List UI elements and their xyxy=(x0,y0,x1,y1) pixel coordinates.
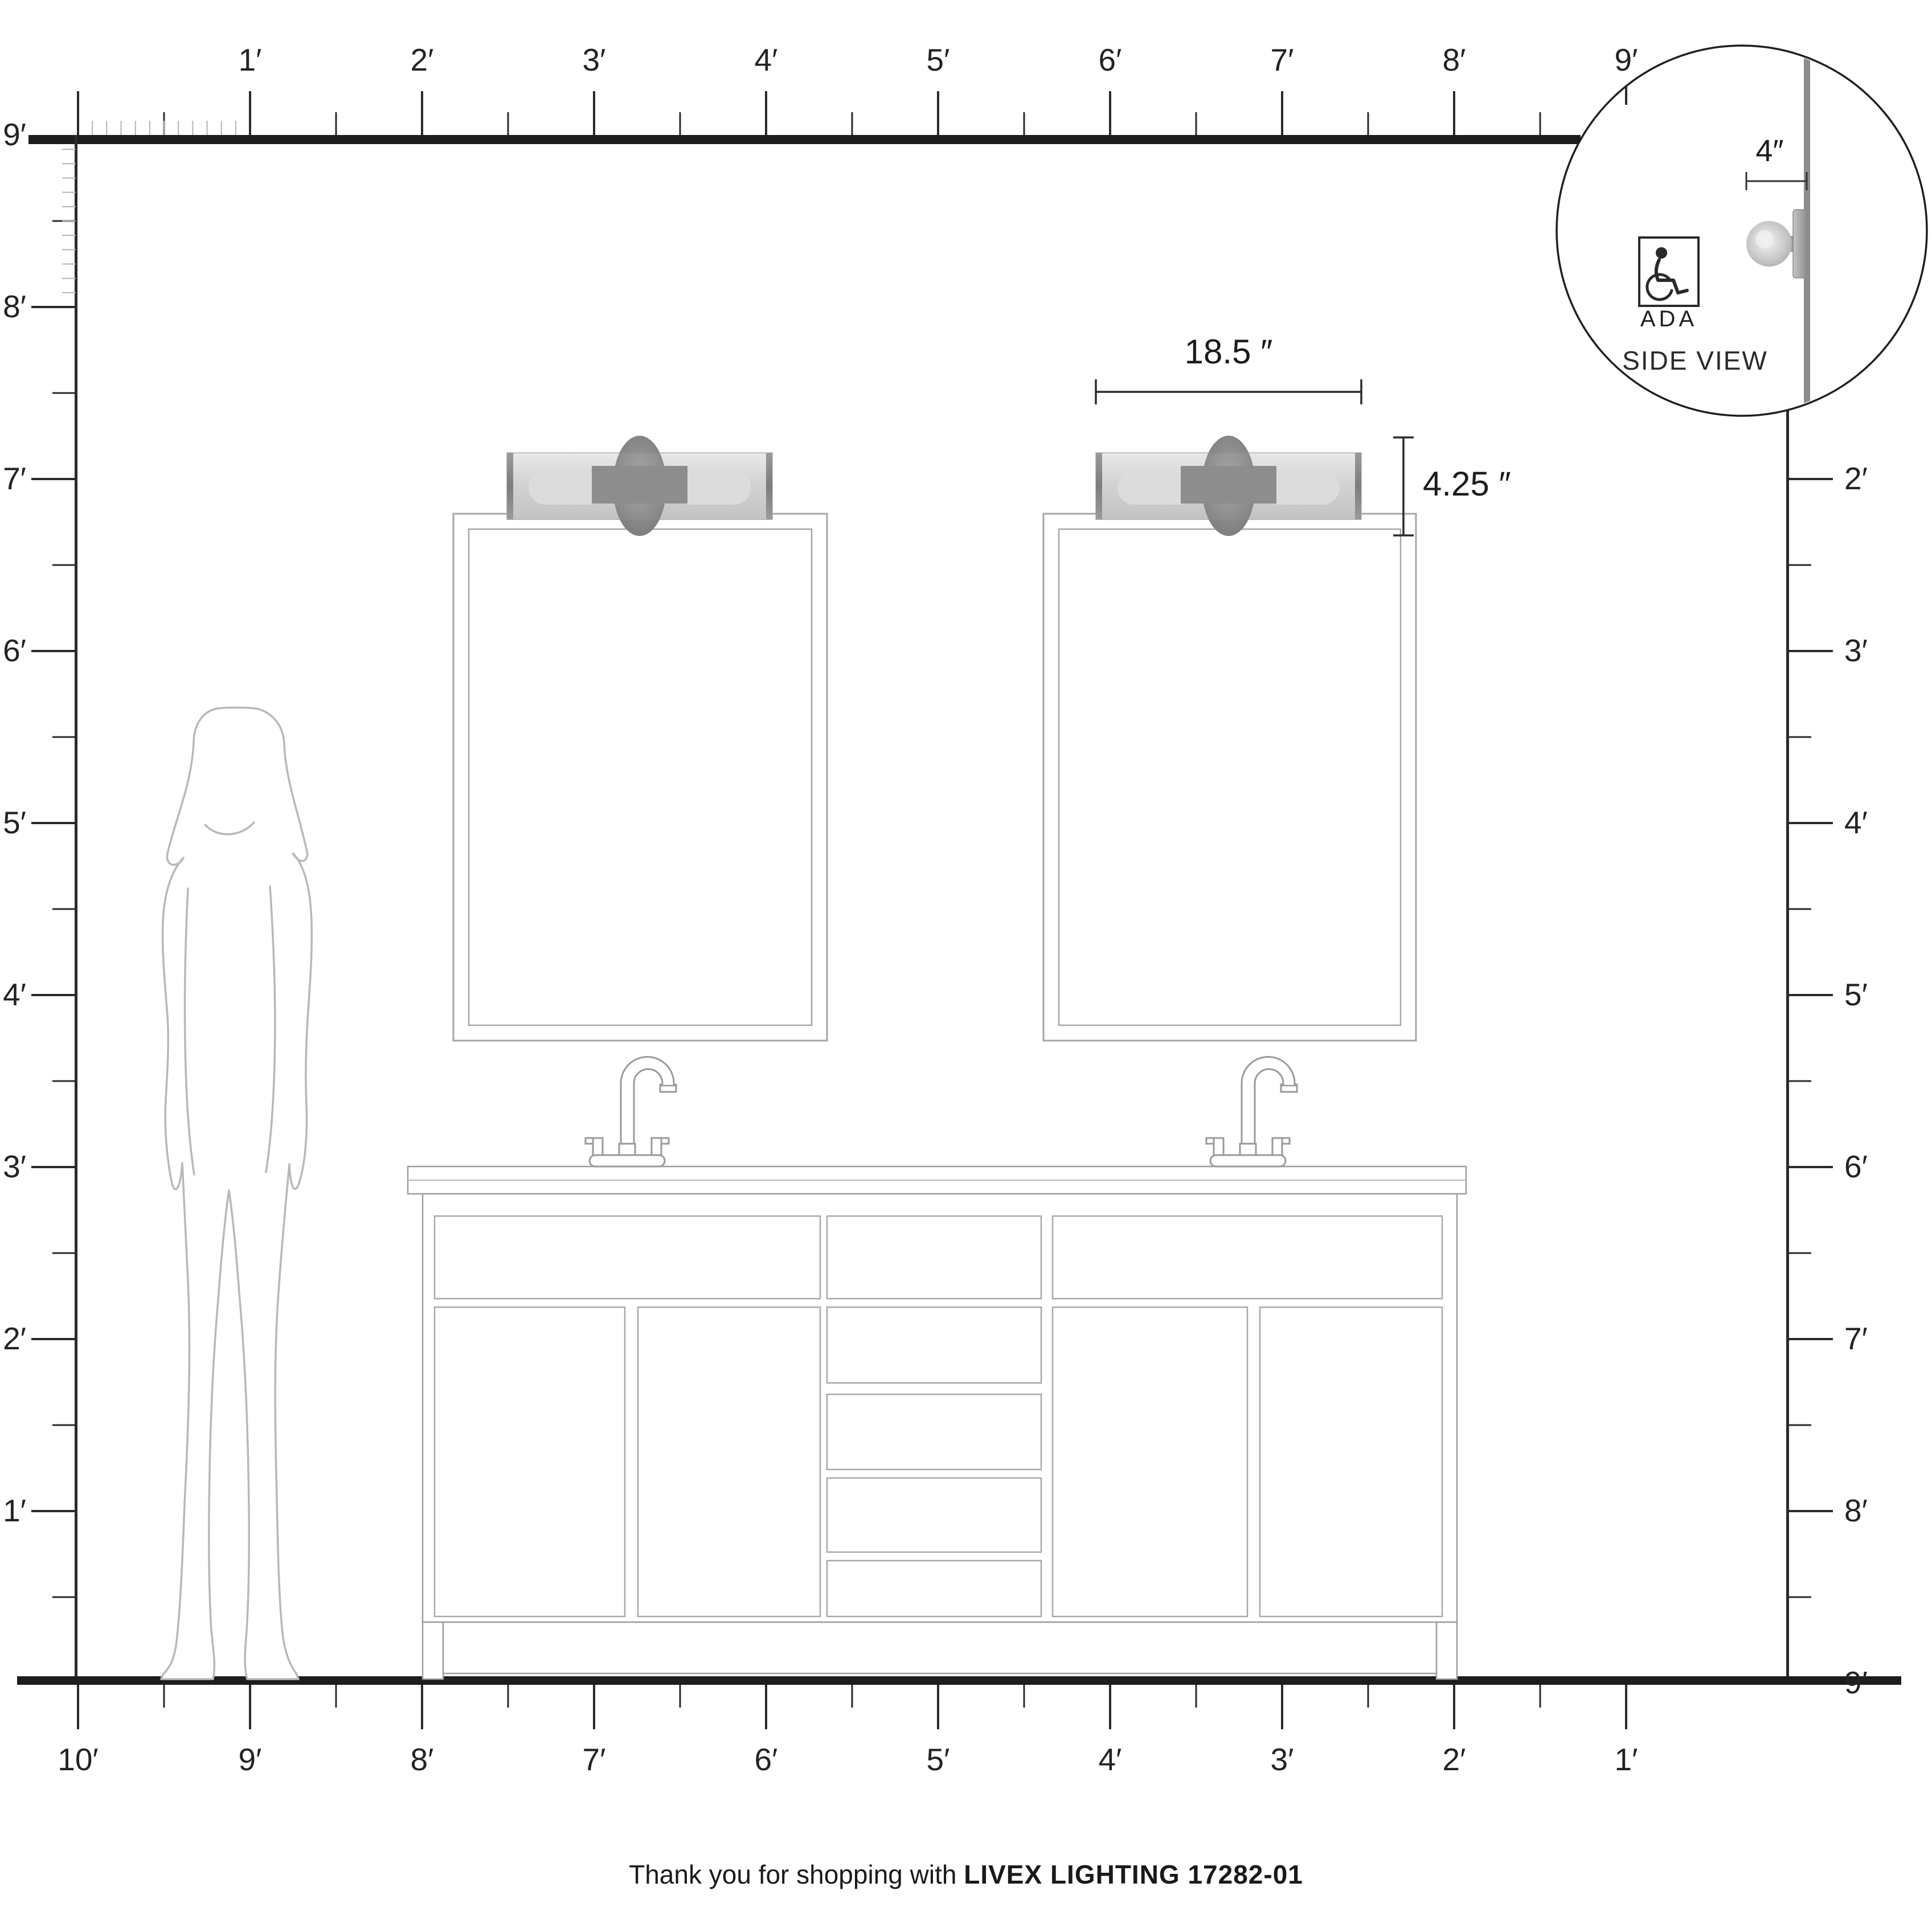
bottom-ruler-label: 6′ xyxy=(721,1744,812,1775)
bottom-ruler-label: 8′ xyxy=(376,1744,468,1775)
right-ruler-line xyxy=(1786,409,1789,1676)
bottom-ruler-label: 9′ xyxy=(204,1744,296,1775)
left-faucet xyxy=(586,1057,676,1167)
scale-figure-silhouette xyxy=(161,707,312,1679)
bottom-ruler-label: 5′ xyxy=(893,1744,984,1775)
footer-brand: LIVEX LIGHTING 17282-01 xyxy=(964,1860,1303,1889)
bottom-ruler-label: 4′ xyxy=(1065,1744,1156,1775)
right-ruler-label: 5′ xyxy=(1844,979,1913,1010)
floor-line xyxy=(17,1676,1901,1685)
right-faucet xyxy=(1206,1057,1297,1167)
left-ruler-label: 8′ xyxy=(0,291,26,322)
left-ruler-label: 5′ xyxy=(0,807,26,838)
bottom-ruler-ticks xyxy=(78,1685,1626,1729)
vanity-cabinet xyxy=(408,1166,1466,1679)
top-ruler-label: 3′ xyxy=(554,44,634,76)
right-ruler-label: 6′ xyxy=(1844,1151,1913,1182)
ada-label: ADA xyxy=(1612,308,1726,330)
fixture-height-dimension-label: 4.25 ″ xyxy=(1423,467,1605,501)
footer-text: Thank you for shopping with LIVEX LIGHTI… xyxy=(0,1859,1932,1890)
left-ruler-label: 3′ xyxy=(0,1151,26,1182)
line-art xyxy=(0,0,1932,1932)
wall-offset-dimension-label: 4″ xyxy=(1713,136,1827,166)
right-ruler-label: 2′ xyxy=(1844,463,1913,494)
right-ruler-ticks xyxy=(1788,479,1833,1597)
left-ruler-label: 6′ xyxy=(0,635,26,666)
wheelchair-icon xyxy=(1639,238,1698,306)
footer-prefix: Thank you for shopping with xyxy=(629,1860,956,1889)
width-dimension-line xyxy=(1096,379,1361,404)
right-ruler-label: 9′ xyxy=(1844,1667,1913,1698)
right-mirror xyxy=(1043,514,1416,1041)
right-ruler-label: 7′ xyxy=(1844,1323,1913,1354)
left-ruler-label: 1′ xyxy=(0,1495,26,1526)
bottom-ruler-label: 7′ xyxy=(549,1744,640,1775)
bottom-ruler-label: 2′ xyxy=(1409,1744,1500,1775)
left-ruler-label: 4′ xyxy=(0,979,26,1010)
bottom-ruler-label: 3′ xyxy=(1237,1744,1328,1775)
top-ruler-label: 6′ xyxy=(1070,44,1150,76)
side-view-label: SIDE VIEW xyxy=(1570,347,1820,374)
left-ruler-line xyxy=(75,135,77,1676)
top-ruler-label: 5′ xyxy=(898,44,978,76)
top-ruler-label: 7′ xyxy=(1242,44,1322,76)
top-ruler-ticks xyxy=(78,91,1540,135)
left-ruler-ticks xyxy=(31,149,76,1597)
bottom-ruler-label: 10′ xyxy=(32,1744,124,1775)
bottom-ruler-label: 1′ xyxy=(1581,1744,1672,1775)
top-ruler-label: 4′ xyxy=(726,44,806,76)
fixture-width-dimension-label: 18.5 ″ xyxy=(1115,335,1342,369)
top-ruler-label: 1′ xyxy=(210,44,290,76)
left-ruler-label: 7′ xyxy=(0,463,26,494)
left-ruler-label: 2′ xyxy=(0,1323,26,1354)
right-ruler-label: 8′ xyxy=(1844,1495,1913,1526)
top-ruler-label: 9′ xyxy=(1586,44,1666,76)
top-ruler-label: 2′ xyxy=(382,44,462,76)
left-mirror xyxy=(453,514,827,1041)
left-ruler-label: 9′ xyxy=(0,119,26,150)
right-ruler-label: 4′ xyxy=(1844,807,1913,838)
top-ruler-label: 8′ xyxy=(1414,44,1494,76)
spec-sheet-canvas: 18.5 ″ 4.25 ″ 4″ ADA SIDE VIEW 1′2′3′4′5… xyxy=(0,0,1932,1932)
ceiling-line xyxy=(28,135,1581,144)
right-ruler-label: 3′ xyxy=(1844,635,1913,666)
